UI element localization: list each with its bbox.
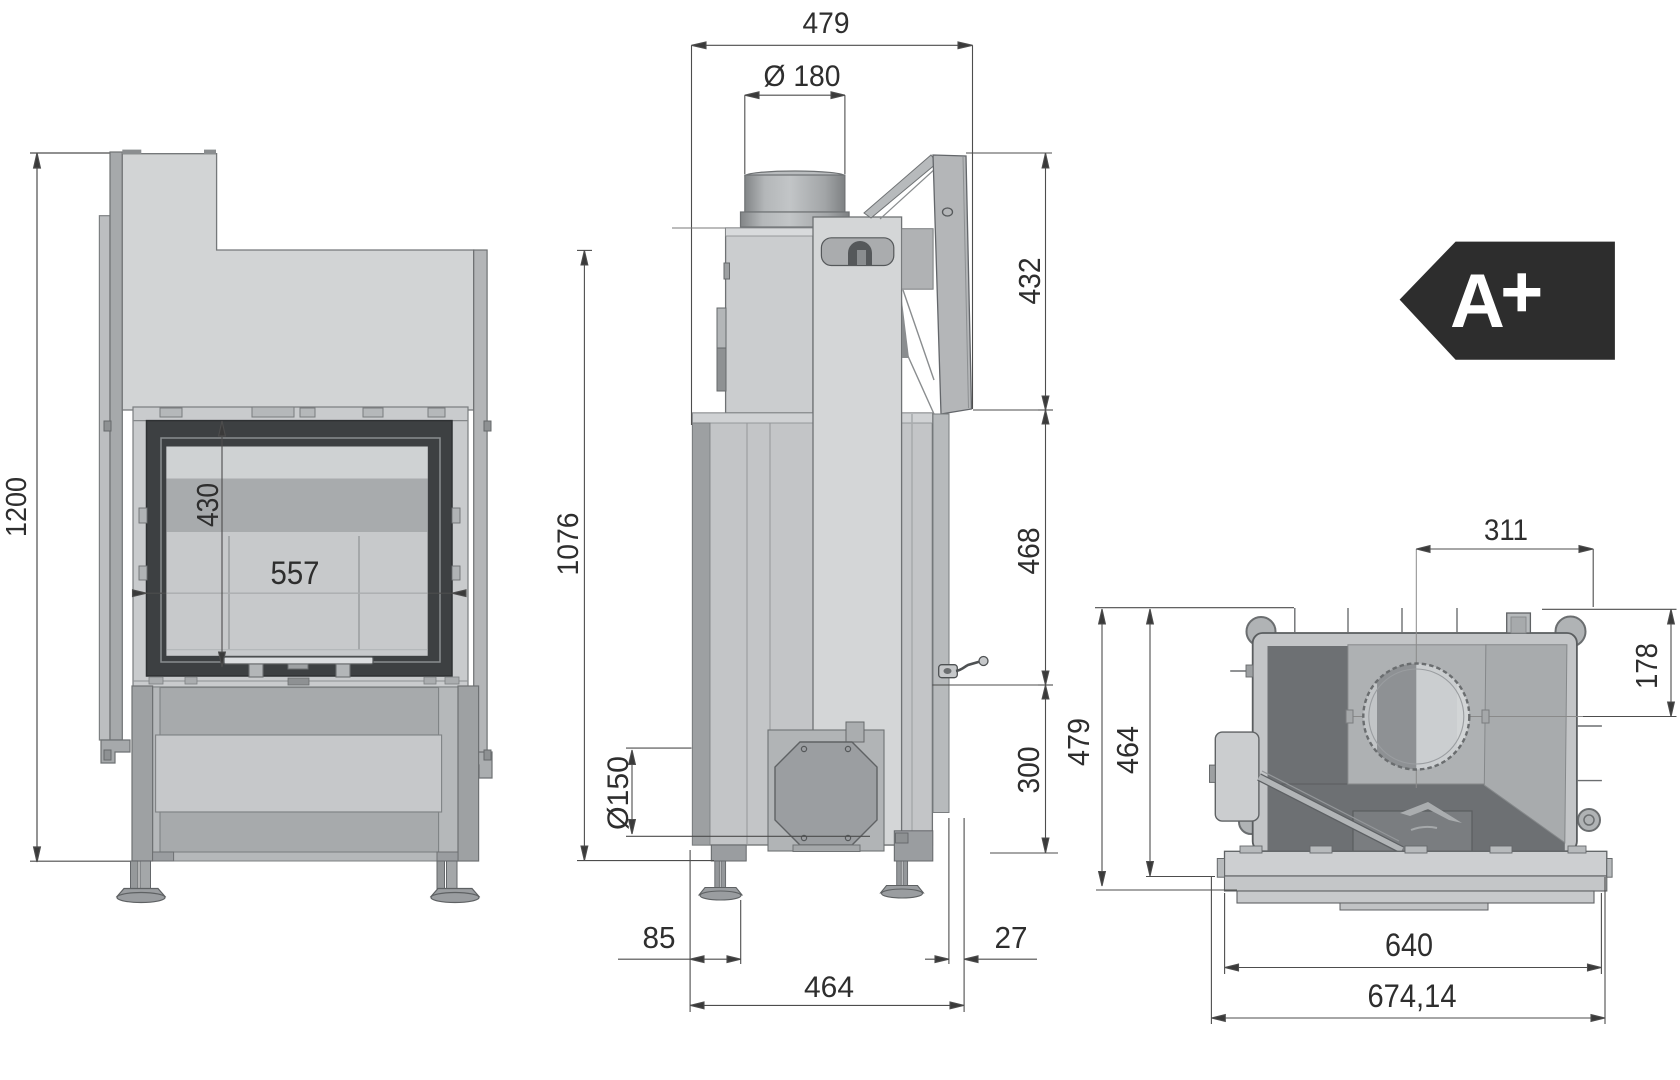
svg-text:Ø 180: Ø 180 [764,60,841,93]
svg-text:557: 557 [271,555,320,591]
svg-text:311: 311 [1484,514,1528,547]
svg-text:85: 85 [643,920,676,955]
svg-text:674,14: 674,14 [1368,978,1457,1014]
svg-text:432: 432 [1012,258,1047,305]
svg-text:479: 479 [803,7,850,40]
svg-text:300: 300 [1011,747,1046,794]
svg-text:178: 178 [1629,643,1664,689]
svg-text:A: A [1450,259,1505,344]
svg-text:640: 640 [1385,927,1433,963]
svg-text:27: 27 [995,920,1028,955]
svg-text:1200: 1200 [1,477,33,537]
svg-text:479: 479 [1061,718,1096,766]
svg-text:430: 430 [190,483,225,527]
svg-text:464: 464 [1110,726,1145,774]
svg-text:Ø150: Ø150 [602,756,635,830]
svg-text:464: 464 [804,971,854,1004]
svg-text:468: 468 [1011,528,1046,575]
svg-text:1076: 1076 [552,513,585,576]
